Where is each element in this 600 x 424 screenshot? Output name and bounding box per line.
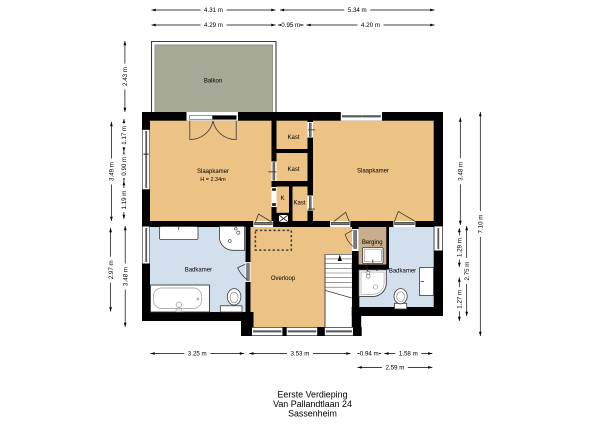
svg-text:7.10 m: 7.10 m: [478, 215, 485, 234]
svg-text:Kast: Kast: [293, 201, 305, 207]
svg-text:4.31 m: 4.31 m: [204, 7, 223, 14]
svg-text:1.27 m: 1.27 m: [457, 290, 464, 309]
svg-text:1.19 m: 1.19 m: [121, 191, 128, 210]
svg-text:1.17 m: 1.17 m: [121, 126, 128, 145]
svg-text:Berging: Berging: [362, 240, 383, 246]
svg-text:0.90 m: 0.90 m: [121, 157, 128, 176]
svg-text:Badkamer: Badkamer: [389, 269, 416, 275]
svg-text:Kast: Kast: [287, 135, 299, 141]
svg-text:2.59 m: 2.59 m: [385, 365, 404, 372]
svg-text:2.43 m: 2.43 m: [122, 67, 129, 86]
svg-text:Sassenheim: Sassenheim: [288, 408, 337, 418]
svg-text:1.29 m: 1.29 m: [457, 238, 464, 257]
svg-text:3.25 m: 3.25 m: [188, 351, 207, 358]
svg-text:2.75 m: 2.75 m: [464, 262, 471, 281]
svg-text:Eerste Verdieping: Eerste Verdieping: [277, 389, 347, 399]
svg-text:Balkon: Balkon: [204, 79, 222, 85]
svg-text:5.34 m: 5.34 m: [348, 7, 367, 14]
svg-text:3.53 m: 3.53 m: [290, 351, 309, 358]
svg-text:4.20 m: 4.20 m: [361, 22, 380, 29]
svg-text:2.97 m: 2.97 m: [108, 260, 115, 279]
svg-text:4.29 m: 4.29 m: [204, 22, 223, 29]
svg-text:H = 2.34m: H = 2.34m: [200, 177, 226, 183]
svg-text:Overloop: Overloop: [271, 276, 296, 282]
svg-text:0.94 m: 0.94 m: [360, 351, 379, 358]
svg-text:3.48 m: 3.48 m: [458, 162, 465, 181]
svg-text:Slaapkamer: Slaapkamer: [357, 169, 389, 175]
svg-text:Kast: Kast: [287, 167, 299, 173]
svg-text:Van Pallandtlaan 24: Van Pallandtlaan 24: [273, 399, 352, 409]
svg-text:3.49 m: 3.49 m: [109, 162, 116, 181]
svg-text:K: K: [280, 196, 284, 202]
svg-text:3.48 m: 3.48 m: [122, 267, 129, 286]
svg-text:Slaapkamer: Slaapkamer: [197, 169, 229, 175]
svg-text:0.95 m: 0.95 m: [281, 22, 300, 29]
svg-text:Badkamer: Badkamer: [185, 268, 212, 274]
svg-text:1.58 m: 1.58 m: [399, 351, 418, 358]
